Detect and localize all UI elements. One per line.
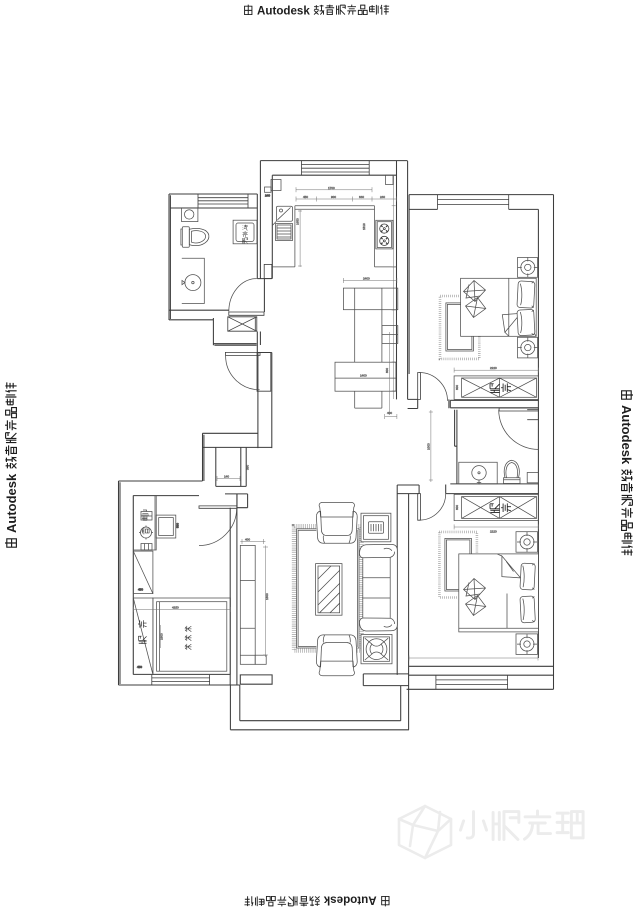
svg-text:450: 450 <box>138 588 143 592</box>
svg-text:Autodesk: Autodesk <box>619 405 634 465</box>
svg-text:Autodesk: Autodesk <box>257 5 310 18</box>
svg-text:600: 600 <box>455 505 459 510</box>
svg-text:Autodesk: Autodesk <box>323 893 376 906</box>
svg-text:450: 450 <box>303 195 308 199</box>
svg-text:390: 390 <box>246 465 250 470</box>
svg-text:1800: 1800 <box>160 633 164 640</box>
svg-text:400: 400 <box>245 538 250 542</box>
svg-text:1700: 1700 <box>328 186 335 190</box>
svg-text:240: 240 <box>265 194 270 198</box>
svg-text:2220: 2220 <box>490 530 497 534</box>
svg-text:1650: 1650 <box>296 218 300 225</box>
svg-text:1600: 1600 <box>265 593 269 600</box>
svg-text:800: 800 <box>385 368 389 373</box>
svg-text:450: 450 <box>137 665 142 669</box>
svg-text:1000: 1000 <box>427 443 431 450</box>
svg-text:Autodesk: Autodesk <box>4 473 19 533</box>
svg-text:140: 140 <box>224 475 229 479</box>
svg-text:1513: 1513 <box>362 223 366 230</box>
svg-text:1400: 1400 <box>360 374 367 378</box>
svg-text:560: 560 <box>175 523 179 528</box>
svg-text:4150: 4150 <box>172 606 179 610</box>
svg-text:2220: 2220 <box>490 366 497 370</box>
svg-text:640: 640 <box>359 195 364 199</box>
svg-text:600: 600 <box>455 385 459 390</box>
svg-text:900: 900 <box>331 195 336 199</box>
svg-text:2400: 2400 <box>363 277 370 281</box>
svg-text:240: 240 <box>380 195 385 199</box>
